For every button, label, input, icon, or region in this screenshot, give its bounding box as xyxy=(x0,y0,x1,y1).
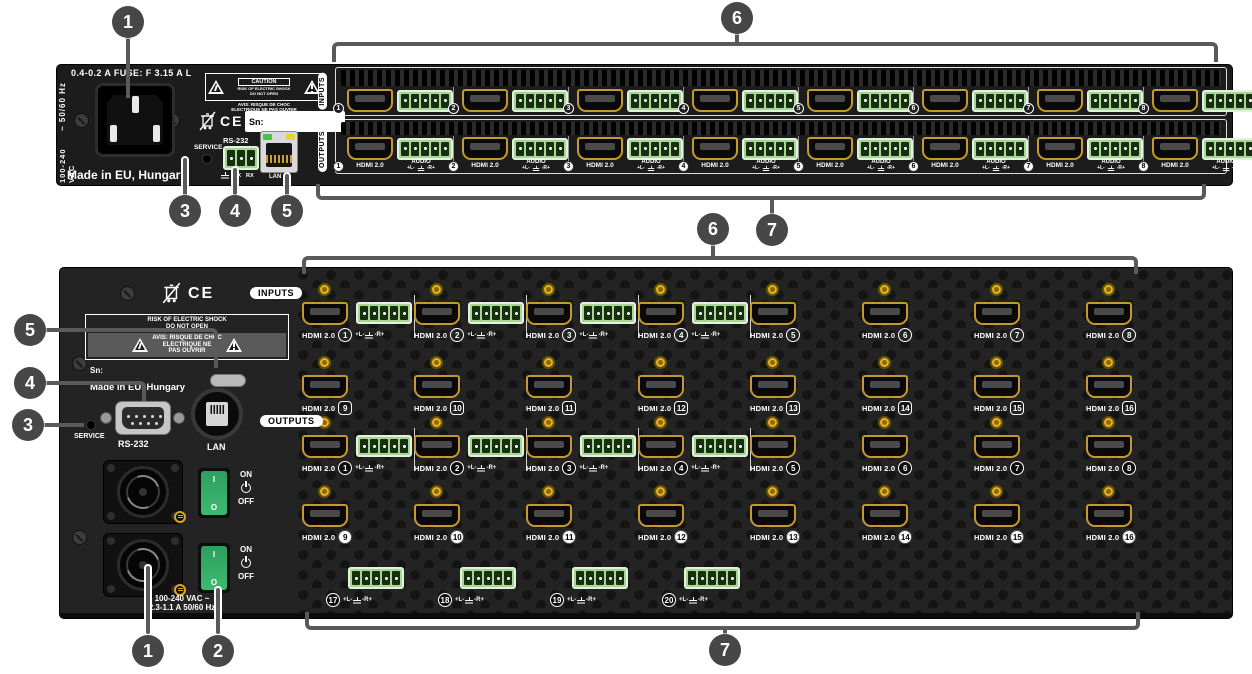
terminal-pin xyxy=(1236,142,1244,156)
power-rating-text: 100-240 VAC ~ 2.3-1.1 A 50/60 Hz xyxy=(112,594,252,612)
connector-row xyxy=(1086,434,1198,458)
pin-left-label: +L- xyxy=(579,332,588,339)
terminal-pin xyxy=(718,571,726,585)
port-group: HDMI 2.08 xyxy=(1086,283,1198,342)
port-number-badge: 7 xyxy=(1010,461,1024,475)
hdmi-port xyxy=(302,375,348,398)
hdmi-port xyxy=(462,89,508,112)
label-row: HDMI 2.02+L--R+ xyxy=(414,461,526,475)
audio-pin-labels: +L--R+ xyxy=(679,597,708,604)
port-group: HDMI 2.015 xyxy=(974,485,1086,544)
audio-terminal-block xyxy=(972,138,1028,160)
label-row: HDMI 2.015 xyxy=(974,401,1086,415)
terminal-pin xyxy=(641,94,649,108)
port-number-badge: 5 xyxy=(793,161,804,172)
port-number-badge: 4 xyxy=(674,461,688,475)
connector-row xyxy=(1086,503,1198,527)
terminal-pin xyxy=(736,439,744,453)
audio-pin-labels: +L--R+ xyxy=(455,597,484,604)
power-switch-1: I O xyxy=(198,468,230,518)
pin-left-label: +L- xyxy=(522,165,530,171)
fuse-rating-text: 0.4-0.2 A FUSE: F 3.15 A L xyxy=(71,68,192,78)
terminal-pin xyxy=(726,439,734,453)
switch-2-labels: ON OFF xyxy=(238,545,254,581)
port-number-badge: 1 xyxy=(338,328,352,342)
lan-ethercon-port xyxy=(191,388,243,440)
terminal-pin xyxy=(996,94,1004,108)
port-number-badge: 11 xyxy=(562,530,576,544)
audio-terminal-block xyxy=(580,302,636,324)
port-number-badge: 9 xyxy=(338,530,352,544)
terminal-pin xyxy=(516,142,524,156)
top-outputs-cells: 1HDMI 2.0AUDIO+L--R+2HDMI 2.0AUDIO+L--R+… xyxy=(339,136,1223,172)
terminal-pin xyxy=(584,306,592,320)
hdmi-label: HDMI 2.0 xyxy=(862,331,895,340)
ground-icon xyxy=(1223,166,1229,172)
label-row: HDMI 2.010 xyxy=(414,530,526,544)
hdmi-label: HDMI 2.0 xyxy=(638,464,671,473)
callout-3-service: 3 xyxy=(169,195,201,227)
pin-right-label: -R+ xyxy=(710,465,720,472)
standoff-screw-icon xyxy=(318,283,331,296)
terminal-pin xyxy=(390,306,398,320)
terminal-pin xyxy=(472,439,480,453)
powercon-inlet-2 xyxy=(103,533,183,597)
output-port-group: 8HDMI 2.0AUDIO+L--R+ xyxy=(1143,136,1252,172)
standoff-screw-icon xyxy=(654,356,667,369)
audio-terminal-block xyxy=(512,90,568,112)
hdmi-port xyxy=(922,89,968,112)
rs232-label: RS-232 xyxy=(118,439,149,449)
hdmi-port xyxy=(974,375,1020,398)
port-group: HDMI 2.06 xyxy=(862,416,974,475)
callout-line xyxy=(44,381,146,401)
label-row: HDMI 2.014 xyxy=(862,401,974,415)
hdmi-port xyxy=(526,435,572,458)
hdmi-port xyxy=(862,375,908,398)
audio-terminal-block xyxy=(684,567,740,589)
pin-left-label: +L- xyxy=(691,332,700,339)
label-row: 19+L--R+ xyxy=(550,593,638,607)
port-group: HDMI 2.01+L--R+ xyxy=(302,283,414,342)
port-number-badge: 6 xyxy=(898,328,912,342)
audio-terminal-block xyxy=(1202,138,1252,160)
weee-icon xyxy=(199,111,216,131)
terminal-pin xyxy=(584,439,592,453)
hdmi-port xyxy=(862,302,908,325)
audio-label-block: AUDIO+L--R+ xyxy=(508,160,564,172)
standoff-screw-icon xyxy=(990,485,1003,498)
terminal-pin xyxy=(1246,142,1252,156)
label-row: 18+L--R+ xyxy=(438,593,526,607)
inputs-bracket-bottom-device xyxy=(302,256,1138,274)
hdmi-label: HDMI 2.0 xyxy=(974,404,1007,413)
lan-port xyxy=(260,131,298,173)
ground-icon xyxy=(418,166,424,172)
port-number-badge: 3 xyxy=(562,328,576,342)
terminal-pin xyxy=(1006,142,1014,156)
output-port-group: 1HDMI 2.0AUDIO+L--R+ xyxy=(339,136,453,172)
port-number-badge: 18 xyxy=(438,593,452,607)
port-number-badge: 12 xyxy=(674,401,688,415)
hdmi-port xyxy=(638,375,684,398)
audio-label-block: AUDIO+L--R+ xyxy=(968,160,1024,172)
terminal-pin xyxy=(614,306,622,320)
port-group: HDMI 2.015 xyxy=(974,356,1086,415)
terminal-pin xyxy=(360,439,368,453)
port-number-badge: 11 xyxy=(562,401,576,415)
hdmi-port xyxy=(1152,89,1198,112)
port-number-badge: 14 xyxy=(898,401,912,415)
pin-right-label: -R+ xyxy=(1232,165,1240,171)
audio-terminal-block xyxy=(348,567,404,589)
audio-pin-labels: +L--R+ xyxy=(579,332,608,339)
terminal-pin xyxy=(380,439,388,453)
iec-prong xyxy=(132,96,139,113)
terminal-pin xyxy=(526,142,534,156)
audio-terminal-block xyxy=(1087,138,1143,160)
terminal-pin xyxy=(881,142,889,156)
port-number-badge: 4 xyxy=(674,328,688,342)
hdmi-port xyxy=(577,137,623,160)
ground-badge-icon xyxy=(174,511,186,523)
terminal-pin xyxy=(661,142,669,156)
ground-icon xyxy=(878,166,884,172)
terminal-pin xyxy=(641,142,649,156)
terminal-pin xyxy=(996,142,1004,156)
audio-terminal-block xyxy=(572,567,628,589)
terminal-pin xyxy=(726,306,734,320)
pin-left-label: +L- xyxy=(679,597,688,604)
ground-icon xyxy=(221,172,229,179)
audio-pin-labels: +L--R+ xyxy=(968,165,1024,172)
ground-icon xyxy=(365,332,373,339)
db9-screw xyxy=(173,412,185,424)
terminal-pin xyxy=(1016,142,1024,156)
hdmi-label: HDMI 2.0 xyxy=(862,533,895,542)
terminal-pin xyxy=(411,142,419,156)
rs232-pin-labels: TX RX xyxy=(221,172,254,179)
input-port-group: 6 xyxy=(913,87,1028,114)
pin-left-label: +L- xyxy=(752,165,760,171)
terminal-pin xyxy=(728,571,736,585)
audio-pin-labels: +L--R+ xyxy=(853,165,909,172)
connector-row xyxy=(974,301,1086,325)
audio-pin-labels: +L--R+ xyxy=(467,332,496,339)
callout-line xyxy=(216,588,220,634)
terminal-pin xyxy=(464,571,472,585)
hdmi-label: HDMI 2.0 xyxy=(302,331,335,340)
label-row: 20+L--R+ xyxy=(662,593,750,607)
pin-right-label: -R+ xyxy=(710,332,720,339)
terminal-pin xyxy=(502,306,510,320)
terminal-pin xyxy=(891,94,899,108)
port-number-badge: 4 xyxy=(678,103,689,114)
hdmi-port xyxy=(526,302,572,325)
port-group: HDMI 2.010 xyxy=(414,356,526,415)
hdmi-label: HDMI 2.0 xyxy=(414,404,447,413)
lan-jack-opening xyxy=(266,143,292,167)
switch-1-labels: ON OFF xyxy=(238,470,254,506)
terminal-pin xyxy=(492,306,500,320)
connector-row xyxy=(414,434,526,458)
lightning-triangle-icon xyxy=(208,80,224,94)
connector-row xyxy=(1086,301,1198,325)
connector-row xyxy=(302,503,414,527)
callout-line xyxy=(126,36,130,98)
hdmi-port xyxy=(692,137,738,160)
label-row: HDMI 2.012 xyxy=(638,401,750,415)
hdmi-label: HDMI 2.0 xyxy=(974,533,1007,542)
standoff-screw-icon xyxy=(542,283,555,296)
terminal-pin xyxy=(746,94,754,108)
callout-1-power-inlet: 1 xyxy=(132,635,164,667)
port-group: HDMI 2.012 xyxy=(638,485,750,544)
standoff-screw-icon xyxy=(766,416,779,429)
hdmi-port xyxy=(1037,89,1083,112)
port-group: HDMI 2.02+L--R+ xyxy=(414,416,526,475)
terminal-pin xyxy=(482,439,490,453)
audio-pin-labels: +L--R+ xyxy=(691,465,720,472)
callout-3-service: 3 xyxy=(12,409,44,441)
label-row: HDMI 2.05 xyxy=(750,461,862,475)
terminal-pin xyxy=(247,150,255,166)
terminal-pin xyxy=(746,142,754,156)
terminal-pin xyxy=(696,306,704,320)
outputs-bracket-top-device xyxy=(316,184,1206,200)
standoff-screw-icon xyxy=(766,356,779,369)
terminal-pin xyxy=(891,142,899,156)
lan-led-yellow xyxy=(286,134,295,140)
port-number-badge: 2 xyxy=(448,161,459,172)
terminal-pin xyxy=(766,142,774,156)
terminal-pin xyxy=(786,142,794,156)
audio-terminal-block xyxy=(468,302,524,324)
standoff-screw-icon xyxy=(878,485,891,498)
audio-terminal-block xyxy=(692,302,748,324)
terminal-pin xyxy=(431,94,439,108)
service-button xyxy=(202,154,212,164)
port-number-badge: 10 xyxy=(450,401,464,415)
port-group: HDMI 2.012 xyxy=(638,356,750,415)
label-row: HDMI 2.08 xyxy=(1086,461,1198,475)
bottom-io: HDMI 2.01+L--R+HDMI 2.02+L--R+HDMI 2.03+… xyxy=(302,268,1198,613)
hdmi-port xyxy=(1086,375,1132,398)
hdmi-port xyxy=(347,137,393,160)
terminal-pin xyxy=(411,94,419,108)
standoff-screw-icon xyxy=(430,485,443,498)
callout-line xyxy=(770,200,774,215)
terminal-pin xyxy=(861,94,869,108)
port-number-badge: 8 xyxy=(1138,161,1149,172)
lan-led-green xyxy=(263,134,272,140)
output-port-group: 4HDMI 2.0AUDIO+L--R+ xyxy=(683,136,798,172)
standoff-screw-icon xyxy=(1102,485,1115,498)
audio-pin-labels: +L--R+ xyxy=(355,332,384,339)
hdmi-label: HDMI 2.0 xyxy=(807,160,853,172)
terminal-pin xyxy=(401,94,409,108)
hdmi-port xyxy=(922,137,968,160)
terminal-pin xyxy=(1246,94,1252,108)
label-row: HDMI 2.03+L--R+ xyxy=(526,461,638,475)
audio-terminal-block xyxy=(356,435,412,457)
connector-row xyxy=(638,434,750,458)
standoff-screw-icon xyxy=(990,416,1003,429)
hdmi-label: HDMI 2.0 xyxy=(862,464,895,473)
audio-terminal-block xyxy=(742,90,798,112)
hdmi-label: HDMI 2.0 xyxy=(750,331,783,340)
hdmi-port xyxy=(750,435,796,458)
audio-terminal-block xyxy=(692,435,748,457)
hdmi-label: HDMI 2.0 xyxy=(974,464,1007,473)
hdmi-port xyxy=(1152,137,1198,160)
audio-pin-labels: +L--R+ xyxy=(355,465,384,472)
terminal-pin xyxy=(756,94,764,108)
pin-right-label: -R+ xyxy=(486,332,496,339)
inputs-bracket-top-device xyxy=(332,42,1218,62)
terminal-pin xyxy=(756,142,764,156)
port-number-badge: 1 xyxy=(333,161,344,172)
standoff-screw-icon xyxy=(430,283,443,296)
hdmi-port xyxy=(692,89,738,112)
port-group: HDMI 2.09 xyxy=(302,485,414,544)
audio-terminal-block xyxy=(627,138,683,160)
db9-screw xyxy=(100,412,112,424)
callout-line xyxy=(44,328,218,368)
port-number-badge: 12 xyxy=(674,530,688,544)
ground-icon xyxy=(533,166,539,172)
port-group: HDMI 2.014 xyxy=(862,485,974,544)
terminal-pin xyxy=(616,571,624,585)
port-number-badge: 16 xyxy=(1122,401,1136,415)
pin-left-label: +L- xyxy=(691,465,700,472)
caution-title: CAUTION xyxy=(238,78,291,86)
terminal-pin xyxy=(594,306,602,320)
port-number-badge: 8 xyxy=(1138,103,1149,114)
terminal-pin xyxy=(1111,142,1119,156)
audio-terminal-block xyxy=(857,90,913,112)
terminal-pin xyxy=(370,439,378,453)
port-group: HDMI 2.07 xyxy=(974,416,1086,475)
ground-icon xyxy=(465,597,473,604)
lan-label: LAN xyxy=(269,174,281,180)
hdmi-port xyxy=(638,302,684,325)
hdmi-port xyxy=(974,504,1020,527)
standoff-screw-icon xyxy=(654,283,667,296)
pin-right-label: -R+ xyxy=(772,165,780,171)
connector-row xyxy=(750,374,862,398)
label-row: HDMI 2.06 xyxy=(862,461,974,475)
ground-icon xyxy=(589,465,597,472)
top-inputs-row: 12345678 xyxy=(335,67,1227,116)
audio-terminal-block xyxy=(742,138,798,160)
hdmi-port xyxy=(1086,302,1132,325)
port-number-badge: 7 xyxy=(1023,103,1034,114)
port-number-badge: 1 xyxy=(338,461,352,475)
terminal-pin xyxy=(986,94,994,108)
hdmi-port xyxy=(414,375,460,398)
hdmi-port xyxy=(807,89,853,112)
connector-row xyxy=(974,434,1086,458)
audio-pin-labels: +L--R+ xyxy=(567,597,596,604)
pin-left-label: +L- xyxy=(637,165,645,171)
audio-pin-labels: +L--R+ xyxy=(623,165,679,172)
terminal-pin xyxy=(631,142,639,156)
connector-row xyxy=(302,301,414,325)
input-port-group: 3 xyxy=(568,87,683,114)
label-row: HDMI 2.011 xyxy=(526,530,638,544)
hdmi-port xyxy=(302,504,348,527)
terminal-pin xyxy=(512,306,520,320)
terminal-pin xyxy=(482,306,490,320)
terminal-pin xyxy=(1226,142,1234,156)
standoff-screw-icon xyxy=(318,356,331,369)
db9-dsub xyxy=(122,407,164,429)
standoff-screw-icon xyxy=(990,356,1003,369)
connector-row xyxy=(750,503,862,527)
service-label: SERVICE xyxy=(74,433,105,440)
audio-terminal-block xyxy=(468,435,524,457)
terminal-pin xyxy=(392,571,400,585)
hdmi-label: HDMI 2.0 xyxy=(526,464,559,473)
terminal-pin xyxy=(352,571,360,585)
port-number-badge: 2 xyxy=(448,103,459,114)
port-number-badge: 5 xyxy=(786,461,800,475)
connector-row xyxy=(414,301,526,325)
port-group: HDMI 2.05 xyxy=(750,416,862,475)
port-group: HDMI 2.013 xyxy=(750,485,862,544)
terminal-pin xyxy=(661,94,669,108)
connector-row xyxy=(462,137,568,160)
port-number-badge: 6 xyxy=(908,161,919,172)
audio-terminal-block xyxy=(356,302,412,324)
terminal-pin xyxy=(390,439,398,453)
terminal-pin xyxy=(536,142,544,156)
terminal-pin xyxy=(776,142,784,156)
pin-right-label: -R+ xyxy=(598,332,608,339)
port-number-badge: 8 xyxy=(1122,461,1136,475)
ground-icon xyxy=(589,332,597,339)
pin-left-label: +L- xyxy=(982,165,990,171)
connector-row xyxy=(692,137,798,160)
terminal-pin xyxy=(606,571,614,585)
connector-row xyxy=(638,374,750,398)
connector-row xyxy=(302,374,414,398)
input-port-group: 5 xyxy=(798,87,913,114)
port-number-badge: 8 xyxy=(1122,328,1136,342)
audio-terminal-block xyxy=(580,435,636,457)
exclamation-triangle-icon xyxy=(226,338,242,352)
terminal-pin xyxy=(237,150,245,166)
audio-pin-labels: +L--R+ xyxy=(393,165,449,172)
hdmi-label: HDMI 2.0 xyxy=(1037,160,1083,172)
hdmi-label: HDMI 2.0 xyxy=(862,404,895,413)
pin-right-label: -R+ xyxy=(1002,165,1010,171)
hdmi-port xyxy=(807,137,853,160)
terminal-pin xyxy=(688,571,696,585)
label-row: HDMI 2.0AUDIO+L--R+ xyxy=(807,160,913,172)
top-io-area: 12345678 1HDMI 2.0AUDIO+L--R+2HDMI 2.0AU… xyxy=(335,67,1227,177)
standoff-screw-icon xyxy=(654,485,667,498)
terminal-pin xyxy=(401,142,409,156)
terminal-pin xyxy=(400,306,408,320)
connector-row xyxy=(862,503,974,527)
hdmi-port xyxy=(862,504,908,527)
terminal-pin xyxy=(1216,94,1224,108)
terminal-pin xyxy=(1091,94,1099,108)
powercon-inlet-1 xyxy=(103,460,183,524)
terminal-pin xyxy=(1101,94,1109,108)
